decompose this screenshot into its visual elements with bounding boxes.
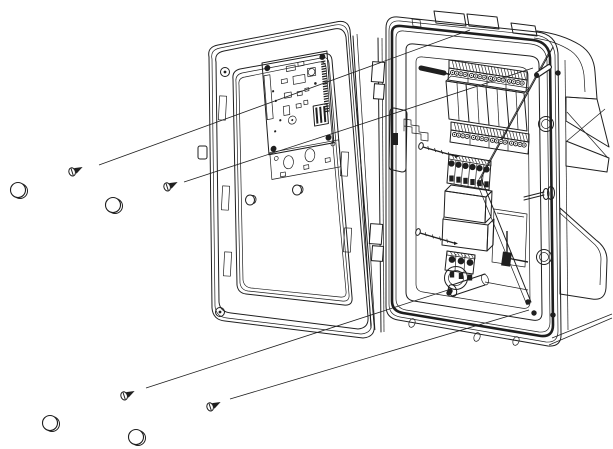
aux-block-screw xyxy=(449,161,454,166)
bracket-hole xyxy=(283,155,294,170)
top-knockout-cover xyxy=(467,14,499,29)
conduit-knockout xyxy=(445,267,468,290)
strip-hatch-tick xyxy=(480,127,482,134)
power-block-contact xyxy=(468,275,472,281)
terminal-screw-dot xyxy=(477,137,478,138)
long-screws xyxy=(415,142,459,245)
leader-line xyxy=(99,30,470,165)
rim-screw xyxy=(525,299,530,304)
strip-hatch-tick xyxy=(454,253,456,256)
long-screw-head xyxy=(418,142,424,150)
wall-plate-slot xyxy=(393,133,398,145)
strip-hatch-tick xyxy=(475,65,477,72)
terminal-screw-dot xyxy=(519,144,520,145)
mounting-screw xyxy=(163,179,180,192)
terminal-screw-dot xyxy=(513,81,514,82)
strip-hatch-tick xyxy=(459,62,461,69)
panel-pin-tip xyxy=(535,73,539,77)
mounting-screws xyxy=(68,164,223,412)
strip-hatch-tick xyxy=(458,253,460,256)
long-screw xyxy=(418,142,459,158)
power-block-screw xyxy=(449,257,455,263)
rim-screw xyxy=(531,310,536,315)
strip-hatch-tick xyxy=(500,130,502,137)
strip-hatch-tick xyxy=(491,67,493,74)
door-slot xyxy=(221,186,229,210)
strip-hatch-tick xyxy=(498,68,500,75)
upper-wedge xyxy=(566,97,609,147)
aux-block-screw xyxy=(477,165,482,170)
strip-hatch-tick xyxy=(458,124,460,131)
aux-block-screw xyxy=(484,167,489,172)
power-block-contact xyxy=(450,272,454,278)
terminal-screw-dot xyxy=(479,76,480,77)
terminal-screw-dot xyxy=(494,78,495,79)
terminal-screw-dot xyxy=(515,143,516,144)
thread-tick xyxy=(435,148,436,152)
leader-line xyxy=(230,310,529,399)
power-block-contact xyxy=(459,273,463,279)
leader-line xyxy=(146,290,448,388)
door-slot xyxy=(223,252,231,276)
strip-hatch-tick xyxy=(472,255,474,258)
strip-hatch-tick xyxy=(469,64,471,71)
strip-hatch-tick xyxy=(477,127,479,134)
terminal-screw-dot xyxy=(483,77,484,78)
terminal-screw-dot xyxy=(523,144,524,145)
strip-hatch-tick xyxy=(484,128,486,135)
strip-hatch-tick xyxy=(478,65,480,72)
pcb-screw xyxy=(264,65,270,72)
thread-tick xyxy=(448,152,449,156)
door xyxy=(198,21,374,338)
terminal-screw-dot xyxy=(504,141,505,142)
aux-block-contact xyxy=(463,178,467,184)
strip-hatch-tick xyxy=(501,69,503,76)
hinge-knuckle xyxy=(373,84,384,100)
strip-hatch-tick xyxy=(481,160,483,164)
aux-block-contact xyxy=(477,180,481,186)
terminal-screw-dot xyxy=(502,79,503,80)
mounting-screw xyxy=(120,388,137,401)
terminal-screw-dot xyxy=(498,79,499,80)
door-edge-tab xyxy=(198,146,207,159)
enclosure-body xyxy=(386,11,612,346)
terminal-screw-dot xyxy=(475,75,476,76)
bracket-hole xyxy=(304,148,315,163)
strip-hatch-tick xyxy=(511,70,513,77)
strip-hatch-tick xyxy=(495,68,497,75)
strip-hatch-tick xyxy=(452,61,454,68)
strip-hatch-tick xyxy=(497,130,499,137)
strip-hatch-tick xyxy=(510,132,512,139)
door-window-frame-1 xyxy=(233,54,352,306)
pcb-chip xyxy=(293,74,305,84)
aux-block-contact xyxy=(484,181,488,187)
strip-hatch-tick xyxy=(465,157,467,161)
strip-hatch-tick xyxy=(468,255,470,258)
wall-pin xyxy=(524,187,555,201)
thread-tick xyxy=(428,146,429,150)
terminal-screw-dot xyxy=(481,138,482,139)
terminal-screw-dot xyxy=(452,72,453,73)
panel-pin-dark xyxy=(421,68,444,73)
thread-tick xyxy=(441,150,442,154)
pcb-capacitor xyxy=(308,68,315,76)
strip-hatch-tick xyxy=(508,70,510,77)
strip-hatch-tick xyxy=(471,126,473,133)
strip-hatch-tick xyxy=(472,158,474,162)
hinge-knuckle xyxy=(369,224,382,245)
long-screw xyxy=(415,228,458,245)
exploded-view-drawing xyxy=(0,0,613,449)
door-window-frame-2 xyxy=(236,58,349,302)
strip-hatch-tick xyxy=(475,159,477,163)
hinge-knuckle xyxy=(371,246,383,262)
strip-hatch-tick xyxy=(451,252,453,255)
power-block-screw xyxy=(458,258,464,264)
terminal-screw-dot xyxy=(521,82,522,83)
lower-wedge xyxy=(566,141,609,172)
terminal-screw-dot xyxy=(473,137,474,138)
aux-block-screw xyxy=(456,162,461,167)
strip-hatch-tick xyxy=(485,66,487,73)
strip-hatch-tick xyxy=(482,66,484,73)
strip-hatch-tick xyxy=(519,133,521,140)
hole-plug xyxy=(129,430,144,445)
aux-block-screw xyxy=(463,163,468,168)
long-screw-shaft xyxy=(423,147,455,156)
strip-hatch-tick xyxy=(472,64,474,71)
strip-hatch-tick xyxy=(461,254,463,257)
mounting-screw xyxy=(206,399,223,412)
door-plug xyxy=(246,195,255,205)
terminal-screw-dot xyxy=(464,74,465,75)
leader-lines xyxy=(99,30,533,399)
door-corner-boss-pin xyxy=(224,71,227,74)
power-block-screw xyxy=(467,260,473,266)
strip-hatch-tick xyxy=(454,123,456,130)
transformer xyxy=(442,185,494,251)
hole-plug xyxy=(106,198,121,213)
door-hole-plugs xyxy=(246,185,304,205)
aux-block-contact xyxy=(470,179,474,185)
terminal-screw-dot xyxy=(485,139,486,140)
terminal-screw-dot xyxy=(492,140,493,141)
terminal-screw-dot xyxy=(462,135,463,136)
door-corner-boss-pin xyxy=(219,311,222,314)
strip-hatch-tick xyxy=(459,156,461,160)
long-screw-tip xyxy=(454,242,458,246)
terminal-screw-dot xyxy=(458,134,459,135)
strip-hatch-tick xyxy=(516,133,518,140)
terminal-screw-dot xyxy=(509,80,510,81)
long-screw-shaft xyxy=(420,233,454,243)
terminal-screw-dot xyxy=(471,75,472,76)
strip-hatch-tick xyxy=(487,128,489,135)
strip-hatch-tick xyxy=(474,126,476,133)
rim-screw xyxy=(555,70,560,75)
terminal-screw-dot xyxy=(500,141,501,142)
terminal-screw-dot xyxy=(496,140,497,141)
rim-screw xyxy=(446,290,451,295)
hole-plugs xyxy=(11,183,146,446)
strip-hatch-tick xyxy=(488,67,490,74)
strip-hatch-tick xyxy=(526,134,528,141)
thread-tick xyxy=(432,234,433,238)
strip-hatch-tick xyxy=(478,159,480,163)
thread-tick xyxy=(440,237,441,241)
strip-hatch-tick xyxy=(523,134,525,141)
sidewall-fold-edge xyxy=(481,47,553,302)
door-outer-rim xyxy=(209,21,375,338)
hole-plug xyxy=(43,416,58,431)
strip-hatch-tick xyxy=(513,132,515,139)
aux-block-contact xyxy=(449,176,453,182)
strip-hatch-tick xyxy=(461,124,463,131)
terminal-screw-dot xyxy=(517,82,518,83)
diagram-canvas xyxy=(0,0,613,449)
hinge-knuckle xyxy=(371,62,384,83)
strip-hatch-tick xyxy=(524,72,526,79)
strip-hatch-tick xyxy=(464,125,466,132)
rim-screw xyxy=(550,312,555,317)
thread-tick xyxy=(447,239,448,243)
terminal-screw-dot xyxy=(456,72,457,73)
strip-hatch-tick xyxy=(467,125,469,132)
door-pcb xyxy=(262,50,341,180)
sidewall-exterior xyxy=(534,31,612,345)
strip-hatch-tick xyxy=(517,71,519,78)
strip-hatch-tick xyxy=(485,160,487,164)
aux-block-contact xyxy=(456,177,460,183)
terminal-screw-dot xyxy=(466,136,467,137)
strip-hatch-tick xyxy=(521,72,523,79)
strip-hatch-tick xyxy=(462,157,464,161)
strip-hatch-tick xyxy=(465,63,467,70)
strip-hatch-tick xyxy=(456,62,458,69)
hole-plug xyxy=(11,183,26,198)
aux-block-screw xyxy=(470,164,475,169)
door-slot xyxy=(218,96,226,120)
strip-hatch-tick xyxy=(468,158,470,162)
strip-hatch-tick xyxy=(490,129,492,136)
door-plug xyxy=(293,185,302,195)
terminal-screw-dot xyxy=(454,134,455,135)
strip-hatch-tick xyxy=(504,69,506,76)
strip-hatch-tick xyxy=(506,131,508,138)
hood-contour xyxy=(537,31,597,99)
strip-hatch-tick xyxy=(462,63,464,70)
terminal-screw-dot xyxy=(460,73,461,74)
mounting-screw xyxy=(68,164,85,177)
strip-hatch-tick xyxy=(493,129,495,136)
terminal-screw-dot xyxy=(511,142,512,143)
terminal-screw-dot xyxy=(490,78,491,79)
thread-tick xyxy=(425,232,426,236)
